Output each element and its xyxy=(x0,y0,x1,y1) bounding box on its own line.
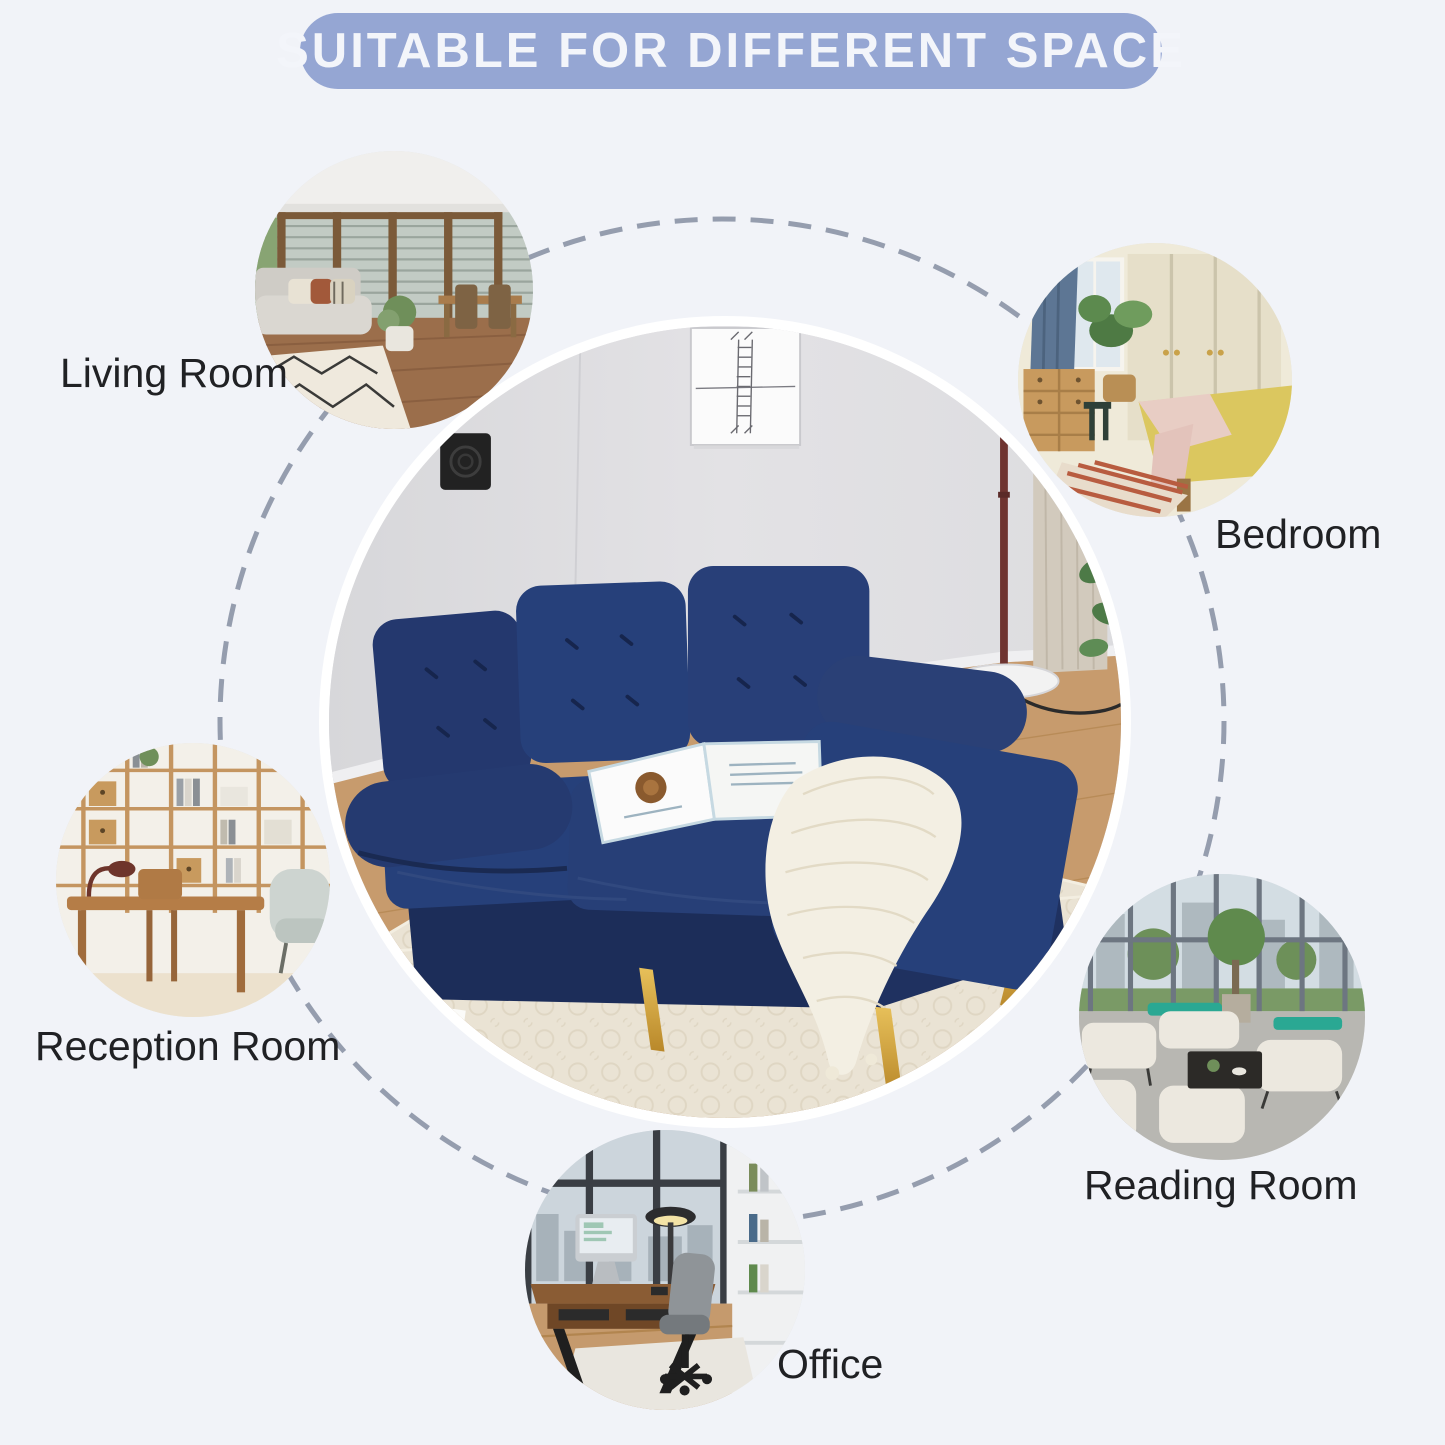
office-photo xyxy=(525,1130,805,1410)
reading-room-label: Reading Room xyxy=(1084,1162,1358,1209)
wall-art-frame xyxy=(691,328,800,449)
grey-sofa xyxy=(255,268,372,335)
product-infographic: SUITABLE FOR DIFFERENT SPACE xyxy=(0,0,1445,1445)
office-scene xyxy=(525,1130,805,1410)
dresser xyxy=(1023,369,1094,451)
bedroom-photo xyxy=(1018,243,1292,517)
black-wall-art xyxy=(440,433,491,490)
living-room-label: Living Room xyxy=(60,350,288,397)
office-label: Office xyxy=(777,1341,883,1388)
reception-room-photo xyxy=(56,743,330,1017)
reception-room-scene xyxy=(56,743,330,1017)
bedroom-label: Bedroom xyxy=(1215,511,1381,558)
sofa-room-scene xyxy=(329,326,1121,1118)
living-room-scene xyxy=(255,151,533,429)
reading-room-photo xyxy=(1079,874,1365,1160)
bedroom-scene xyxy=(1018,243,1292,517)
reading-room-scene xyxy=(1079,874,1365,1160)
reception-room-label: Reception Room xyxy=(35,1023,340,1070)
product-photo-main xyxy=(319,316,1131,1128)
coffee-table xyxy=(1188,1051,1262,1088)
living-room-photo xyxy=(255,151,533,429)
